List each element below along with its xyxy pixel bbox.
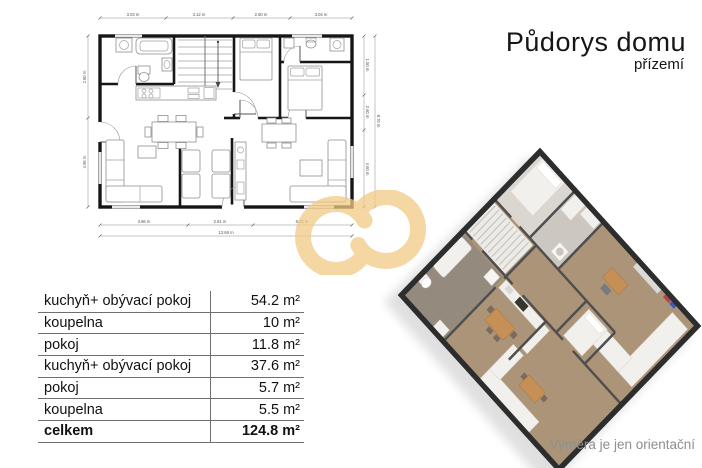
- title-block: Půdorys domu přízemí: [506, 27, 686, 73]
- table-row: kuchyň+ obývací pokoj37.6 m²: [38, 356, 304, 378]
- room-area: 11.8 m²: [210, 334, 304, 355]
- dim-label: 4.60 m: [365, 163, 370, 176]
- dining-table: [145, 116, 203, 149]
- small-bathroom-fixtures: [284, 38, 344, 51]
- floorplan-sheet: 3.03 m 3.12 m 2.50 m 3.04 m 3.86 m 2.81 …: [0, 0, 702, 468]
- room-label: kuchyň+ obývací pokoj: [38, 356, 210, 377]
- room-label: celkem: [38, 421, 210, 442]
- dim-label: 2.60 m: [365, 106, 370, 119]
- room-label: kuchyň+ obývací pokoj: [38, 291, 210, 312]
- bathroom-fixtures: [116, 38, 172, 82]
- dim-label: 2.80 m: [82, 70, 87, 83]
- room-label: koupelna: [38, 313, 210, 334]
- dim-label: 13.66 m: [218, 230, 234, 235]
- dim-label: 8.70 m: [376, 115, 381, 128]
- room-label: pokoj: [38, 378, 210, 399]
- dim-label: 3.03 m: [127, 12, 140, 17]
- dim-label: 3.86 m: [138, 219, 151, 224]
- area-table: kuchyň+ obývací pokoj54.2 m²koupelna10 m…: [38, 291, 304, 443]
- floor-plan-3d: [380, 140, 702, 468]
- bed: [288, 66, 322, 110]
- table-row: pokoj5.7 m²: [38, 378, 304, 400]
- kitchen-counter: [136, 86, 216, 100]
- floor-plan-3d-model: [398, 148, 701, 468]
- dim-label: 4.95 m: [82, 155, 87, 168]
- room-area: 37.6 m²: [210, 356, 304, 377]
- table-row: kuchyň+ obývací pokoj54.2 m²: [38, 291, 304, 313]
- room-area: 54.2 m²: [210, 291, 304, 312]
- bed: [240, 38, 272, 80]
- page-subtitle: přízemí: [506, 56, 684, 73]
- dim-label: 2.81 m: [214, 219, 227, 224]
- room-area: 5.5 m²: [210, 399, 304, 420]
- disclaimer-text: Výměra je jen orientační: [549, 437, 695, 452]
- dining-table: [262, 118, 296, 148]
- dim-label: 2.50 m: [255, 12, 268, 17]
- room-label: koupelna: [38, 399, 210, 420]
- table-row: koupelna5.5 m²: [38, 399, 304, 421]
- room-area: 5.7 m²: [210, 378, 304, 399]
- dim-label: 3.04 m: [315, 12, 328, 17]
- table-row: pokoj11.8 m²: [38, 334, 304, 356]
- page-title: Půdorys domu: [506, 27, 686, 58]
- armchairs: [182, 150, 230, 198]
- stairs: [178, 36, 232, 90]
- table-row: koupelna10 m²: [38, 313, 304, 335]
- dim-label: 1.50 m: [365, 59, 370, 72]
- room-label: pokoj: [38, 334, 210, 355]
- table-row: celkem124.8 m²: [38, 421, 304, 443]
- room-area: 124.8 m²: [210, 421, 304, 442]
- sofa: [106, 140, 162, 202]
- room-area: 10 m²: [210, 313, 304, 334]
- kitchenette: [235, 142, 246, 200]
- dim-label: 3.12 m: [193, 12, 206, 17]
